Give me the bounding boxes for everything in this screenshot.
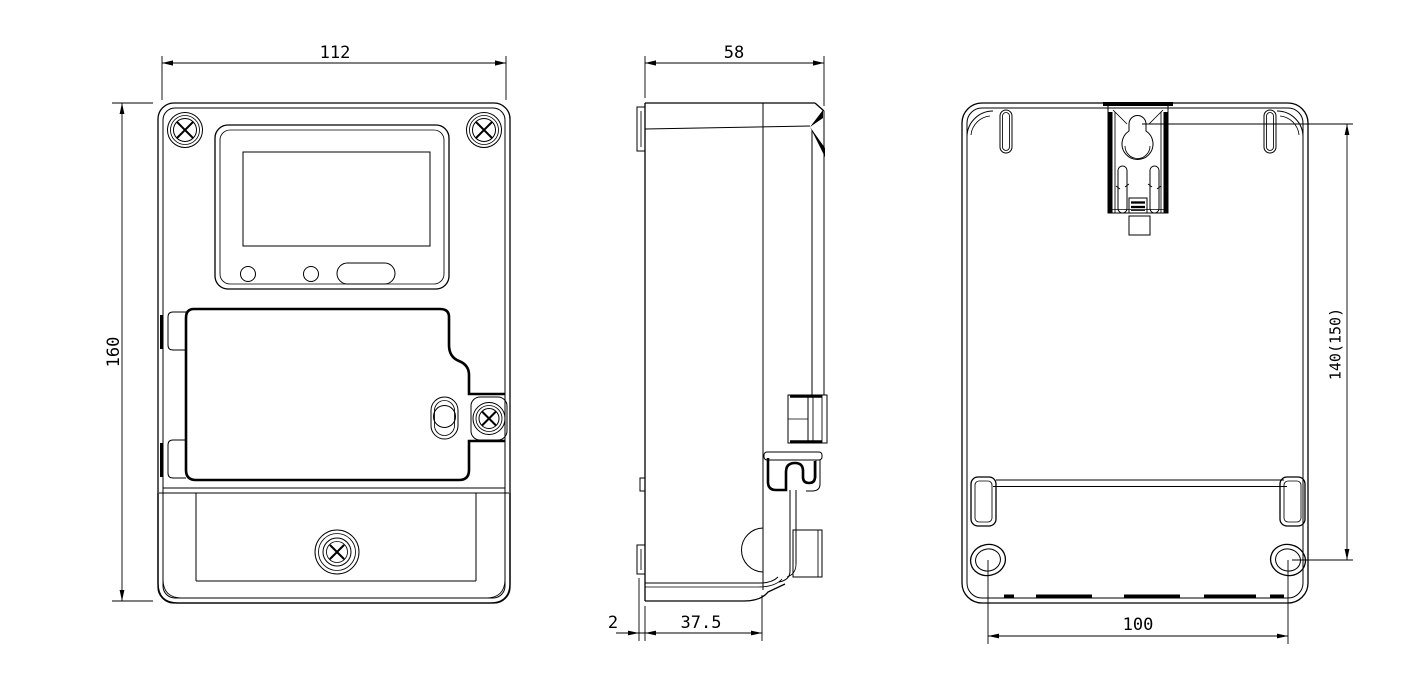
- dim-rear-hole-spacing: 100: [988, 560, 1288, 644]
- dim-front-width: 112: [162, 43, 506, 100]
- front-edge-tab: [640, 478, 645, 491]
- display-button: [337, 263, 395, 284]
- hanger-hook: [764, 452, 822, 491]
- terminal-boss-arc: [742, 528, 764, 572]
- dim-side-total-depth: 58: [645, 43, 824, 106]
- bottom-edge-dashes: [1004, 595, 1284, 598]
- dim-label-rear-vertical: 140(150): [1327, 308, 1345, 380]
- indicator-led-left: [241, 267, 256, 282]
- front-lip-bottom: [637, 545, 645, 574]
- corner-slot-left: [1000, 110, 1012, 153]
- ratchet-teeth: [1129, 198, 1147, 213]
- cover-screw-boss: [471, 397, 507, 440]
- front-screw-top-right: [467, 113, 502, 148]
- phillips-cross-icon: [331, 546, 344, 559]
- bracket-side-bar-left: [1108, 112, 1113, 213]
- hinge-knuckle-bottom: [168, 440, 186, 478]
- hinge-pin-top: [160, 315, 164, 349]
- spring-arm-right: [1148, 166, 1161, 213]
- dim-front-height: 160: [104, 103, 153, 601]
- phillips-cross-icon: [178, 123, 193, 138]
- dim-label-side-depth: 58: [724, 43, 744, 63]
- seam-hook-left: [971, 477, 996, 526]
- terminal-cover-face: [196, 493, 476, 581]
- dim-label-side-lip: 2: [608, 613, 618, 633]
- corner-slot-right: [1264, 110, 1276, 153]
- display-faceplate-inner: [220, 130, 444, 284]
- hanger-bracket: [1103, 102, 1173, 235]
- hinge-knuckle-top: [168, 312, 186, 350]
- front-lip-top: [637, 107, 645, 151]
- dim-rear-hanger-to-holes: 140(150): [1142, 124, 1353, 560]
- corner-pocket-top-left: [967, 111, 993, 137]
- dim-side-front-lip: 2: [608, 578, 645, 641]
- spring-arm-left: [1116, 166, 1129, 213]
- side-view: [637, 103, 827, 601]
- side-top-edge: [815, 103, 824, 111]
- terminal-seal-screw: [315, 530, 359, 574]
- dim-side-body-depth: 37.5: [639, 595, 762, 641]
- rear-view: [962, 102, 1308, 603]
- din-latch-block: [788, 395, 827, 443]
- front-view: [158, 103, 510, 603]
- phillips-cross-icon: [477, 123, 492, 138]
- side-bottom-edges: [645, 577, 785, 601]
- display-faceplate: [215, 125, 449, 289]
- meter-cover: [160, 309, 507, 480]
- rear-lower-block: [793, 530, 822, 577]
- front-screw-top-left: [168, 113, 203, 148]
- seal-hole-oval: [431, 397, 458, 439]
- terminal-cover: [158, 493, 510, 603]
- hanger-wedge: [810, 110, 823, 127]
- front-case-outline: [158, 103, 510, 603]
- rear-case-inner-outline: [967, 108, 1303, 598]
- top-cap-seam: [645, 126, 810, 129]
- bracket-tab: [1129, 216, 1150, 235]
- technical-drawing-canvas: 112 160 58 2 37.5: [0, 0, 1421, 692]
- rear-case-outline: [962, 103, 1308, 603]
- seam-hook-right: [1280, 477, 1305, 526]
- bracket-side-bar-right: [1164, 112, 1169, 213]
- dim-label-side-body-depth: 37.5: [681, 613, 722, 633]
- hinge-pin-bottom: [160, 443, 164, 477]
- dim-label-front-width: 112: [320, 43, 351, 63]
- indicator-led-right: [304, 267, 319, 282]
- dim-label-rear-horizontal: 100: [1123, 615, 1154, 635]
- lcd-window: [243, 152, 430, 246]
- dim-label-front-height: 160: [104, 337, 124, 368]
- front-case-inner-outline: [163, 108, 505, 598]
- phillips-cross-icon: [483, 412, 496, 425]
